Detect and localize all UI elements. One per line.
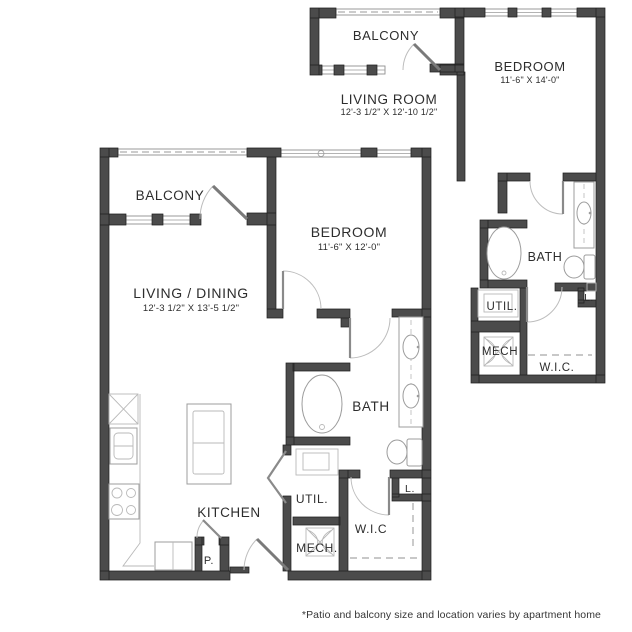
alt-utility-label: UTIL. — [486, 301, 517, 313]
main-kitchen-label: KITCHEN — [197, 505, 260, 520]
main-sink-1-faucet — [417, 346, 420, 349]
main-linen-label: L. — [405, 483, 415, 495]
main-sink-2 — [403, 384, 419, 408]
main-wic-label: W.I.C — [355, 522, 387, 536]
main-balcony-label: BALCONY — [136, 188, 205, 203]
alt-bedroom-label: BEDROOM — [494, 59, 565, 74]
main-pantry-label: P. — [204, 555, 214, 567]
main-bedroom-label: BEDROOM — [311, 224, 388, 240]
main-mechanical-label: MECH. — [296, 541, 338, 555]
kitchen-fridge — [155, 542, 192, 570]
main-sink-2-faucet — [417, 395, 420, 398]
main-utility-label: UTIL. — [296, 492, 328, 506]
alt-wic-label: W.I.C. — [540, 362, 575, 374]
main-sink-1 — [403, 335, 419, 359]
alt-mechanical-label: MECH — [482, 346, 518, 358]
alt-linen-label: L. — [584, 293, 594, 304]
main-toilet-bowl — [387, 440, 407, 464]
alt-bedroom-dimensions: 11'-6" X 14'-0" — [500, 75, 559, 85]
floorplan-drawing: BALCONY LIVING ROOM 12'-3 1/2" X 12'-10 … — [0, 0, 632, 632]
alt-living-room-label: LIVING ROOM — [341, 92, 438, 107]
main-bedroom-dimensions: 11'-6" X 12'-0" — [318, 242, 380, 253]
alt-balcony-label: BALCONY — [353, 28, 419, 43]
alt-toilet-bowl — [564, 256, 584, 278]
alt-living-room-dimensions: 12'-3 1/2" X 12'-10 1/2" — [341, 107, 438, 117]
page-background — [0, 0, 632, 632]
main-living-dining-label: LIVING / DINING — [133, 285, 249, 301]
main-living-dining-dimensions: 12'-3 1/2" X 13'-5 1/2" — [143, 303, 239, 314]
alt-sink-faucet — [589, 212, 592, 215]
footnote: *Patio and balcony size and location var… — [302, 609, 601, 621]
alt-bath-label: BATH — [528, 250, 563, 264]
floorplan-page: BALCONY LIVING ROOM 12'-3 1/2" X 12'-10 … — [0, 0, 632, 632]
main-bath-label: BATH — [352, 399, 389, 414]
alt-toilet-tank — [584, 255, 595, 279]
main-toilet-tank — [407, 439, 422, 466]
